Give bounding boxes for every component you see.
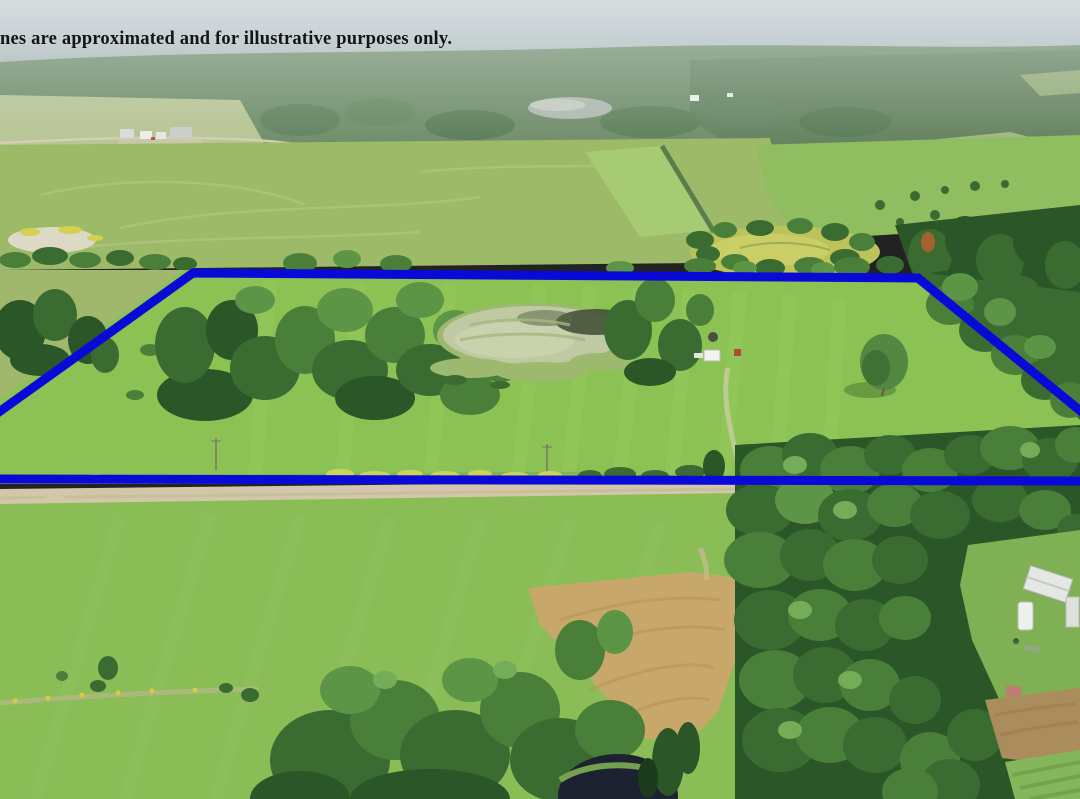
fire-pit bbox=[708, 332, 718, 342]
rv-camper bbox=[1018, 602, 1033, 630]
property-boundary-bottom-line bbox=[0, 479, 1080, 481]
aerial-photo-listing-image: nes are approximated and for illustrativ… bbox=[0, 0, 1080, 799]
aerial-photo bbox=[0, 0, 1080, 799]
rusty-tree bbox=[921, 232, 935, 252]
camper-trailer bbox=[704, 350, 720, 361]
play-structure bbox=[734, 349, 741, 356]
disclaimer-text: nes are approximated and for illustrativ… bbox=[0, 29, 452, 50]
outbuilding bbox=[1066, 597, 1079, 627]
